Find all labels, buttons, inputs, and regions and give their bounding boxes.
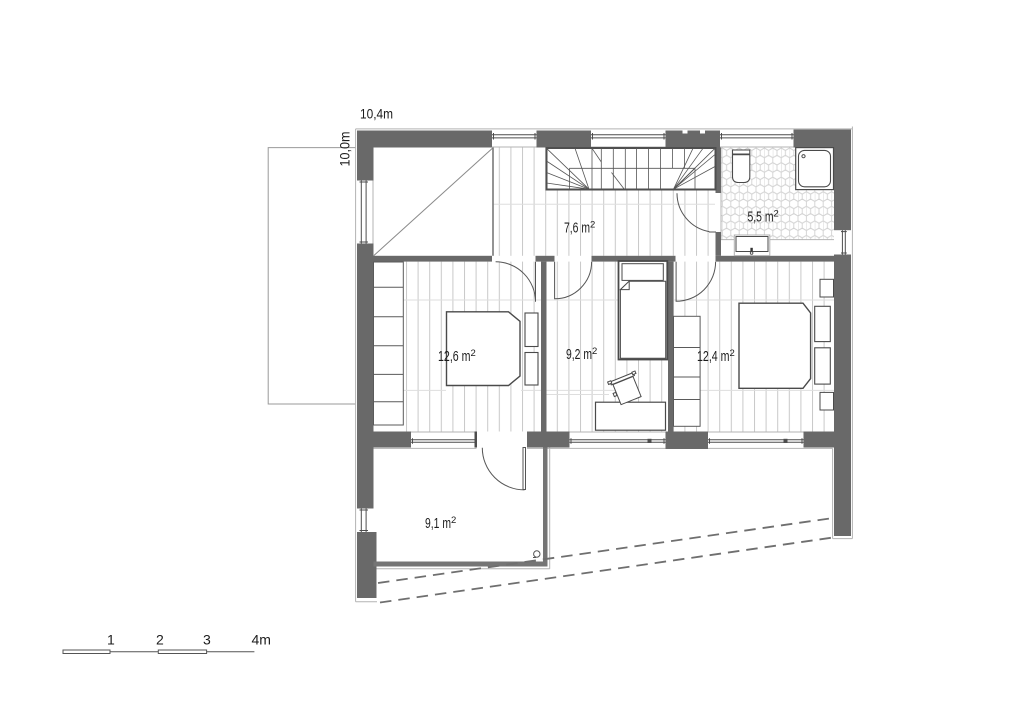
svg-text:1: 1 — [107, 632, 115, 648]
svg-text:4m: 4m — [252, 632, 271, 648]
svg-text:10,4m: 10,4m — [360, 106, 393, 122]
svg-text:12,6 m2: 12,6 m2 — [438, 348, 476, 365]
svg-text:2: 2 — [156, 632, 164, 648]
svg-text:12,4 m2: 12,4 m2 — [697, 348, 735, 365]
svg-text:3: 3 — [203, 632, 211, 648]
svg-text:10,0m: 10,0m — [337, 132, 353, 167]
